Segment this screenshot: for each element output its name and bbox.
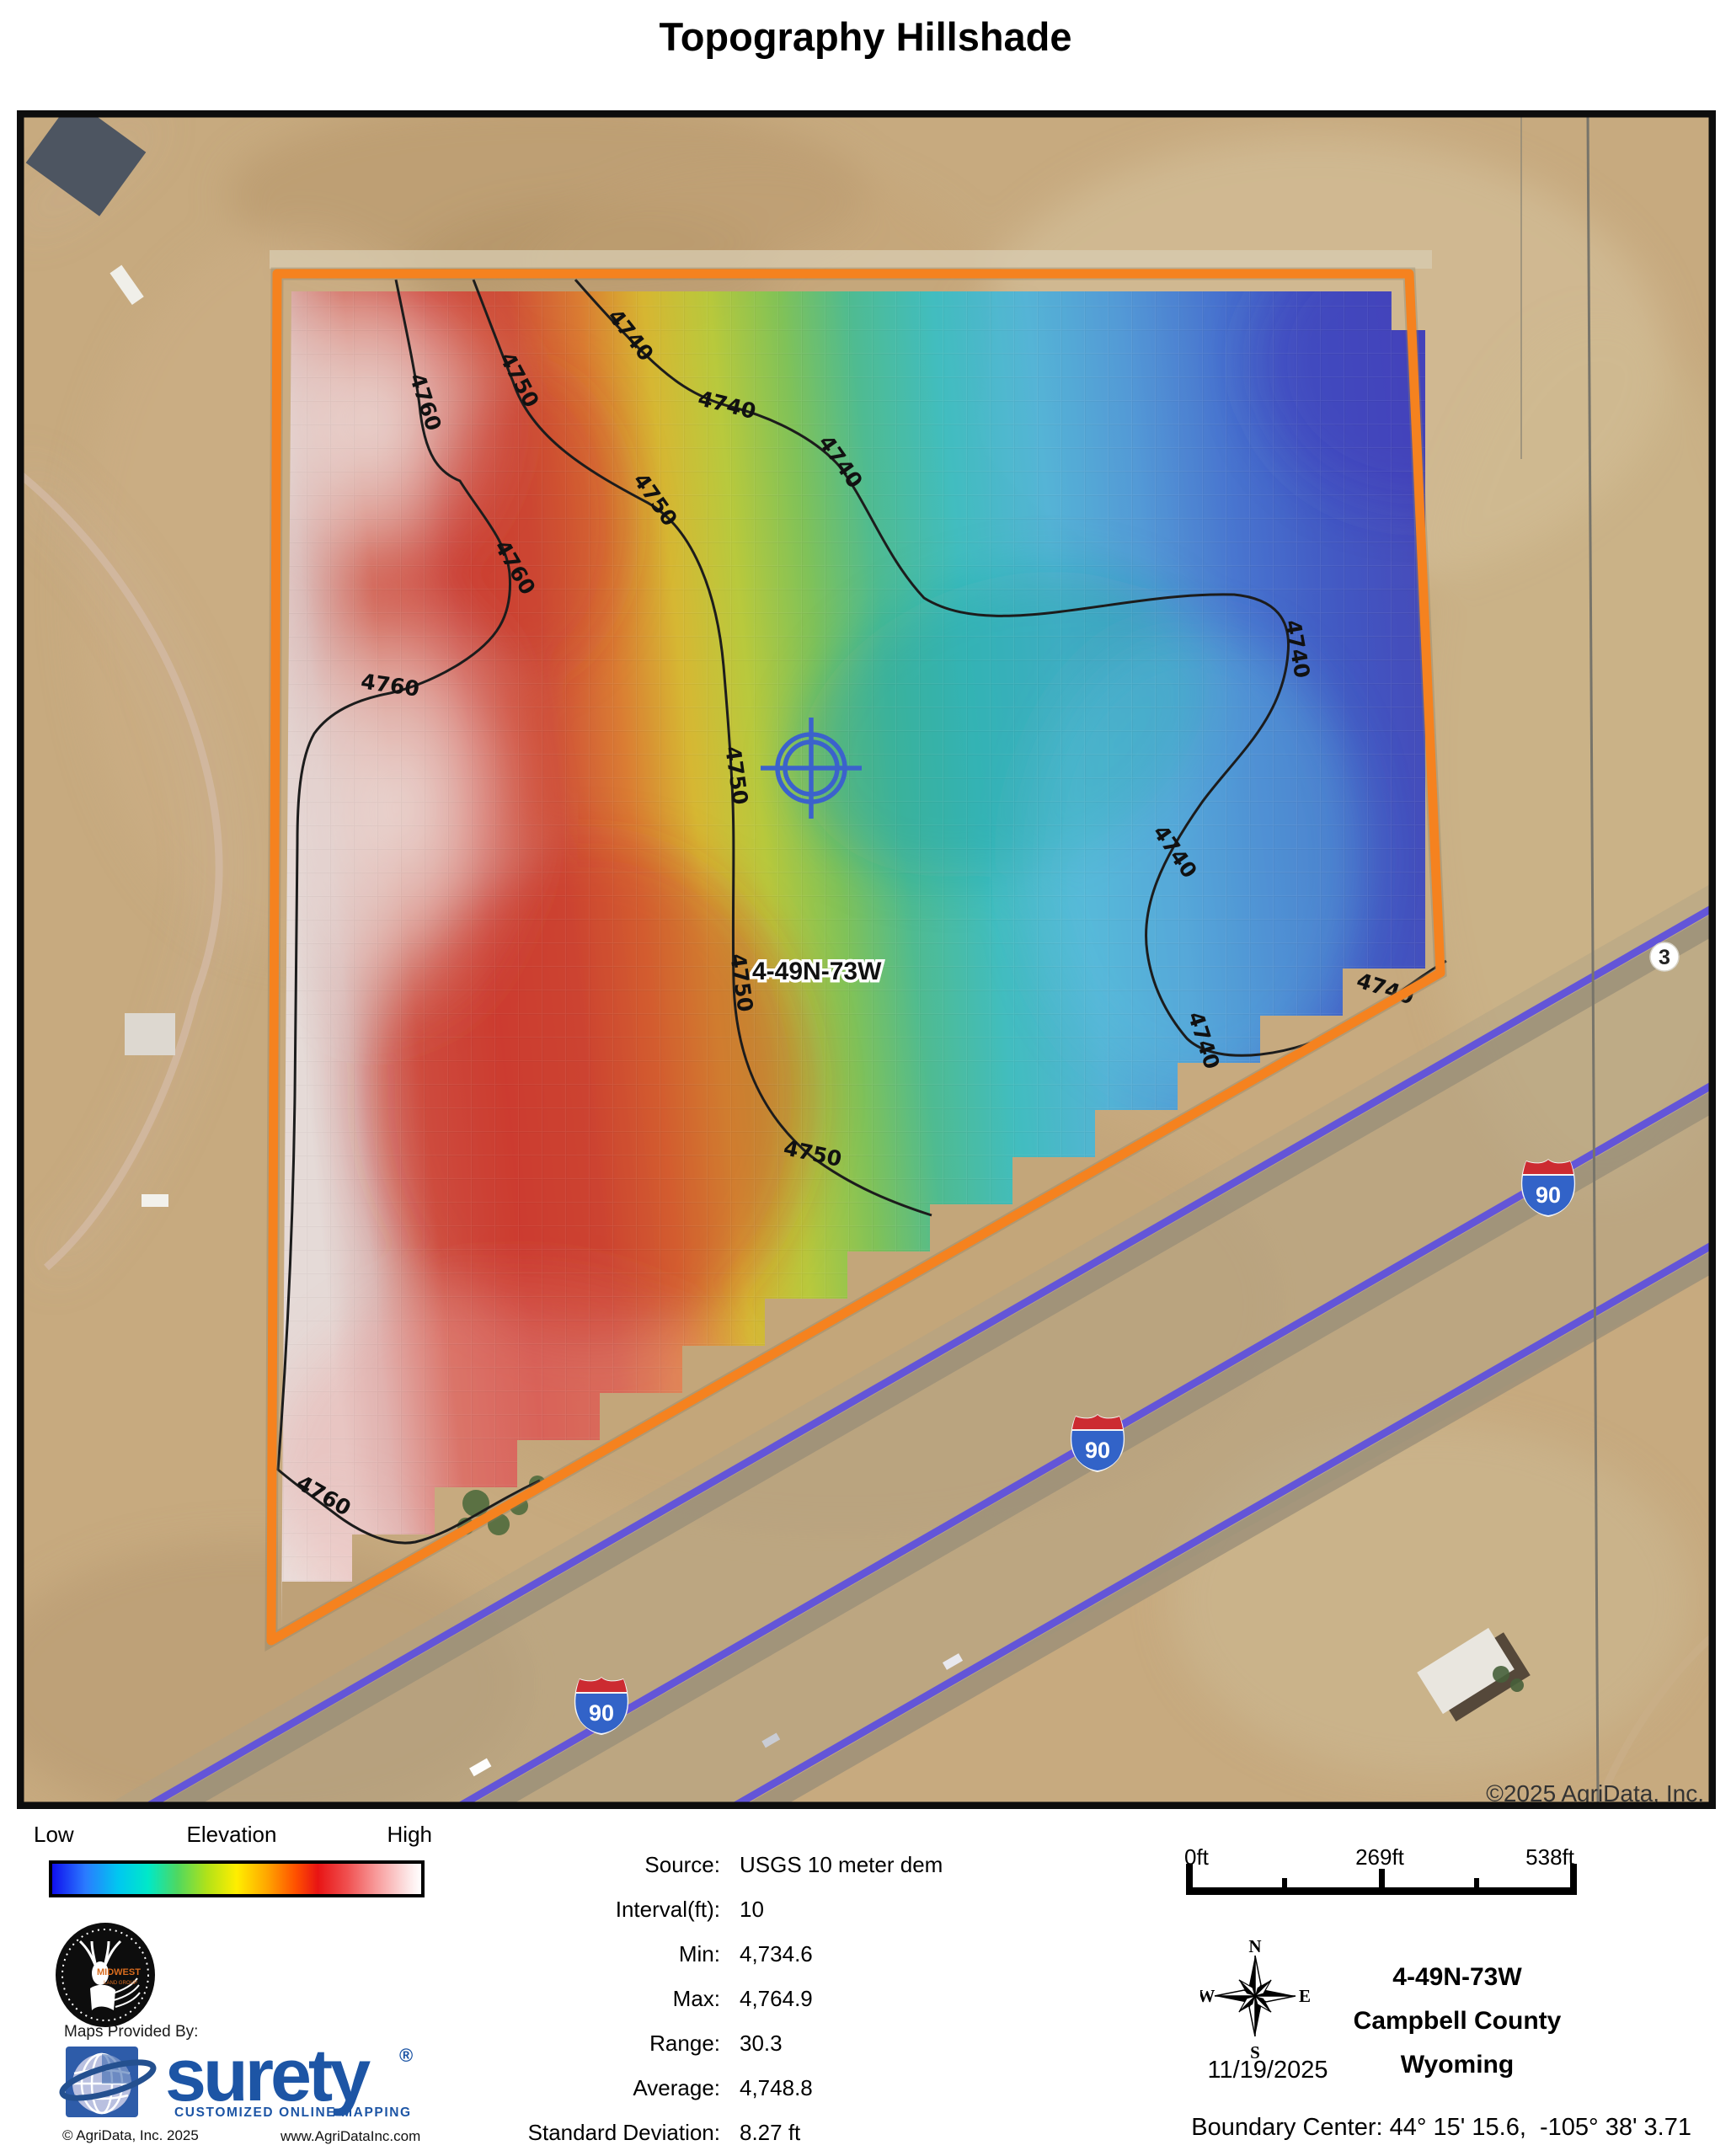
surety-tagline: CUSTOMIZED ONLINE MAPPING	[174, 2105, 412, 2121]
location-state: Wyoming	[1314, 2043, 1600, 2087]
svg-text:N: N	[1248, 1937, 1261, 1956]
surety-wordmark: surety	[165, 2038, 367, 2112]
svg-text:MIDWEST: MIDWEST	[97, 1967, 141, 1977]
stat-row: Average:4,748.8	[362, 2075, 901, 2104]
stat-row: Range:30.3	[362, 2031, 901, 2059]
map-canvas: 4740 4740 4740 4740 4740 4740 4740 4750 …	[17, 110, 1716, 1809]
satellite-imagery: 4740 4740 4740 4740 4740 4740 4740 4750 …	[17, 110, 1716, 1809]
stat-row: Source:USGS 10 meter dem	[362, 1852, 901, 1881]
location-block: 4-49N-73W Campbell County Wyoming	[1314, 1956, 1600, 2087]
location-trs: 4-49N-73W	[1314, 1956, 1600, 1999]
compass-rose-icon: N E S W	[1200, 1937, 1310, 2063]
svg-text:90: 90	[1085, 1438, 1110, 1463]
stat-row: Interval(ft):10	[362, 1897, 901, 1925]
legend-low-label: Low	[34, 1822, 74, 1848]
page-title: Topography Hillshade	[0, 13, 1731, 60]
svg-text:W: W	[1200, 1986, 1215, 2006]
stat-row: Min:4,734.6	[362, 1941, 901, 1970]
section-number-marker: 3	[1650, 942, 1679, 971]
legend-high-label: High	[348, 1822, 432, 1848]
shed	[142, 1194, 168, 1207]
svg-text:90: 90	[1536, 1182, 1561, 1208]
svg-text:E: E	[1299, 1986, 1310, 2006]
location-county: Campbell County	[1314, 1999, 1600, 2043]
stat-row: Max:4,764.9	[362, 1986, 901, 2015]
legend-title: Elevation	[147, 1822, 316, 1848]
svg-text:90: 90	[589, 1700, 614, 1726]
agridata-copyright: © AgriData, Inc. 2025	[62, 2127, 199, 2144]
parcel-trs-label: 4-49N-73W	[752, 958, 882, 985]
svg-text:3: 3	[1659, 946, 1670, 969]
house	[125, 1013, 175, 1055]
svg-text:LAND GROUP: LAND GROUP	[104, 1981, 137, 1986]
stat-row: Standard Deviation:8.27 ft	[362, 2120, 901, 2148]
scale-bar	[1179, 1857, 1584, 1908]
midwest-land-group-logo: MIDWEST LAND GROUP	[53, 1921, 158, 2029]
report-page: Topography Hillshade	[0, 0, 1731, 2156]
boundary-center-coordinates: Boundary Center: 44° 15' 15.6, -105° 38'…	[1011, 2114, 1691, 2142]
surety-globe-icon	[64, 2045, 158, 2121]
map-svg: 4740 4740 4740 4740 4740 4740 4740 4750 …	[17, 110, 1716, 1809]
